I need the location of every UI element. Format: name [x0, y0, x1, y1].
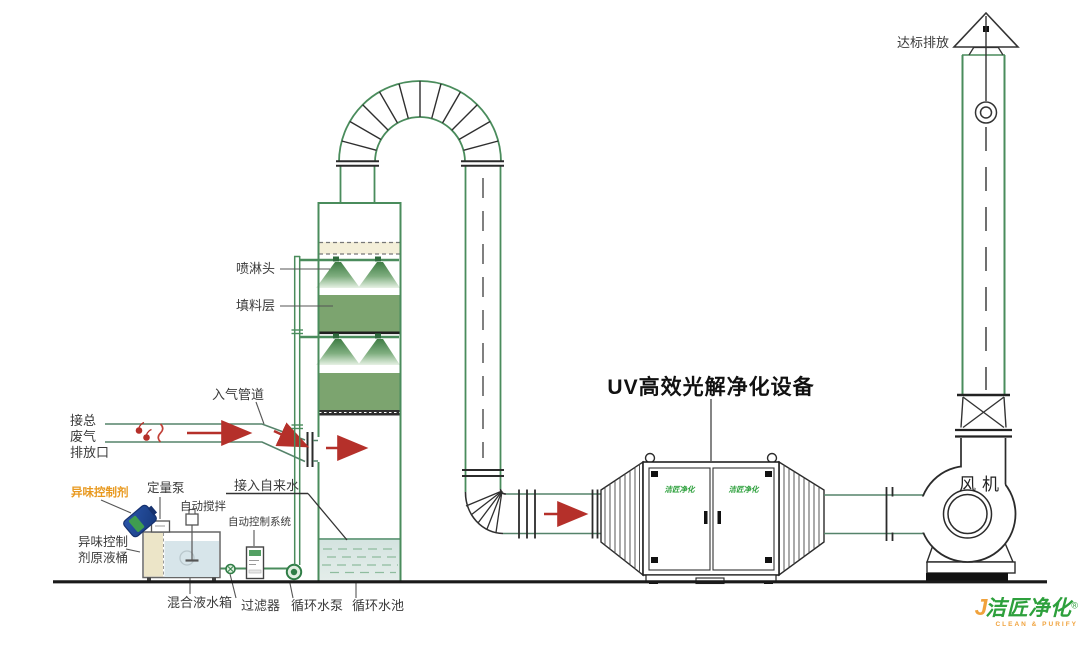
- scrubber-tower: [300, 203, 401, 581]
- stirrer-motor: [186, 514, 198, 525]
- label-metering-pump: 定量泵: [147, 481, 185, 495]
- pipe-break-icon: [158, 424, 163, 442]
- brand-logo: J洁匠净化® CLEAN & PURIFY: [944, 596, 1078, 629]
- fan-unit: [890, 430, 1016, 581]
- uv-equipment-title: UV高效光解净化设备: [607, 371, 814, 401]
- dosing-station: [122, 256, 303, 582]
- label-fan: 风机: [959, 470, 1005, 495]
- brand-logo-subtitle: CLEAN & PURIFY: [944, 622, 1078, 629]
- label-inlet-duct: 入气管道: [212, 388, 264, 403]
- lifting-ring-icon: [768, 454, 777, 463]
- label-auto-mixer: 自动搅拌: [180, 501, 226, 514]
- label-waste-inlet-2: 废气: [70, 430, 96, 445]
- label-mixing-tank: 混合液水箱: [167, 596, 232, 611]
- lifting-ring-icon: [646, 454, 655, 463]
- door-logo-right: 洁匠净化: [729, 484, 759, 495]
- uv-photolysis-unit: [601, 399, 945, 584]
- label-filter: 过滤器: [241, 599, 280, 614]
- diagram-linework: [0, 0, 1080, 654]
- elbow-duct-to-uv: [465, 489, 601, 539]
- label-waste-inlet-3: 排放口: [70, 446, 109, 461]
- label-waste-inlet-1: 接总: [70, 414, 96, 429]
- brand-logo-name: 洁匠净化: [985, 597, 1071, 620]
- door-logo-left: 洁匠净化: [665, 484, 695, 495]
- process-diagram: 达标排放 喷淋头 填料层 入气管道 接总 废气 排放口 异味控制剂 定量泵 自动…: [0, 0, 1080, 654]
- brand-logo-registered: ®: [1071, 601, 1078, 611]
- label-circulating-pool: 循环水池: [352, 599, 404, 614]
- label-odor-agent: 异味控制剂: [71, 487, 129, 500]
- flow-arrows: [187, 431, 565, 514]
- exhaust-stack: [954, 13, 1018, 428]
- label-emission: 达标排放: [897, 36, 949, 51]
- label-agent-tank-1: 异味控制: [78, 535, 128, 549]
- label-packing-layer: 填料层: [236, 299, 275, 314]
- label-circulating-pump: 循环水泵: [291, 599, 343, 614]
- label-spray-head: 喷淋头: [236, 262, 275, 277]
- label-auto-control: 自动控制系统: [228, 517, 291, 529]
- gas-molecule-icon: [143, 434, 150, 441]
- label-agent-tank-2: 剂原液桶: [78, 551, 128, 565]
- flow-arrow-icon: [274, 431, 288, 438]
- waste-gas-inlet-pipe: [105, 423, 318, 468]
- gas-molecule-icon: [136, 427, 143, 434]
- label-tap-water: 接入自来水: [234, 479, 299, 494]
